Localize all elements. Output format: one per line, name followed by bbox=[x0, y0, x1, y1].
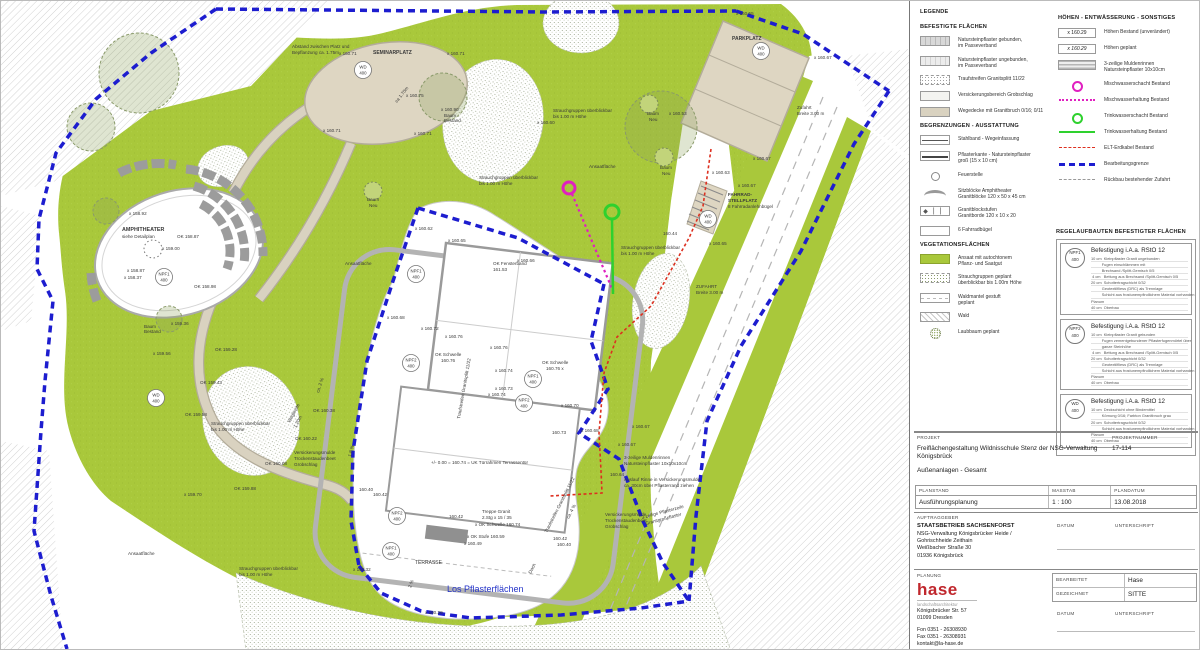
bearbeitet-label: BEARBEITET bbox=[1053, 574, 1124, 587]
legend-item-label: Pflasterkante - Natursteinpflaster groß … bbox=[958, 151, 1031, 165]
plan-label: Versickerungsmulde bbox=[294, 450, 336, 455]
plan-label: 8 Fahrradanlehnbügel bbox=[728, 204, 773, 209]
elt-swatch bbox=[1058, 144, 1096, 154]
plan-label: OK 159.58 bbox=[185, 412, 207, 417]
surface-badge-label: NPF1 bbox=[386, 546, 398, 551]
legend-item: Mischwasserschacht Bestand bbox=[1058, 80, 1196, 90]
legend-item-label: Wald bbox=[958, 312, 969, 319]
ansaat-swatch bbox=[920, 254, 950, 264]
surface-badge-label: WD bbox=[757, 46, 764, 51]
pflkante-swatch bbox=[920, 151, 950, 161]
legend-item-label: Laubbaum geplant bbox=[958, 328, 999, 335]
surface-badge-label: 400 bbox=[407, 364, 415, 369]
address-line: Fon 0351 - 26308930 bbox=[917, 627, 967, 634]
surface-badge-label: 400 bbox=[704, 220, 712, 225]
plan-label: x 159.70 bbox=[184, 492, 202, 497]
thalt-swatch bbox=[1058, 128, 1096, 138]
plan-label: x 160.68 bbox=[387, 315, 405, 320]
plan-label: 160.76 bbox=[441, 358, 455, 363]
legend-item: Natursteinpflaster gebunden, im Passever… bbox=[920, 36, 1052, 50]
legend-section-title: BEGRENZUNGEN - AUSSTATTUNG bbox=[920, 123, 1052, 129]
plan-label: 160.64 bbox=[610, 472, 624, 477]
plan-label: x 160.74 bbox=[488, 392, 506, 397]
legend-item: 3-zeilige Muldenrinnen Natursteinpflaste… bbox=[1058, 60, 1196, 74]
rueckbau-swatch bbox=[1058, 176, 1096, 186]
surface-badge-label: 400 bbox=[152, 399, 160, 404]
address-line: 01936 Königsbrück bbox=[917, 553, 1014, 560]
project-subtitle: Außenanlagen - Gesamt bbox=[917, 467, 987, 474]
legend-item-label: Granitblockstufen Granitborde 120 x 10 x… bbox=[958, 206, 1016, 220]
plan-label: x 160.71 bbox=[447, 51, 465, 56]
sitz-swatch bbox=[920, 187, 950, 197]
legend-item-label: Wegedecke mit Granitbruch 0/16; 0/11 bbox=[958, 107, 1043, 114]
massstab-value: 1 : 100 bbox=[1048, 496, 1110, 508]
plan-label: OK Schwelle bbox=[542, 360, 569, 365]
plan-label: x 160.71 bbox=[414, 131, 432, 136]
surface-badge-label: 400 bbox=[412, 275, 420, 280]
hase-logo-subtitle: landschaftsarchitektur bbox=[917, 600, 977, 607]
plan-label: OK 158.98 bbox=[194, 284, 216, 289]
plan-label: Strauchgruppen überblickbar bbox=[621, 245, 680, 250]
plan-label: x 160.66 bbox=[517, 258, 535, 263]
address-line: NSG-Verwaltung Königsbrücker Heide / bbox=[917, 531, 1014, 538]
legend-item-label: Stahlband - Wegeinfassung bbox=[958, 135, 1019, 142]
plan-label: x 159.56 bbox=[153, 351, 171, 356]
plan-label: +/- 0.00 = 160.74 = UK Türrahmen Terrass… bbox=[431, 460, 528, 465]
legend-item: Wegedecke mit Granitbruch 0/16; 0/11 bbox=[920, 107, 1052, 117]
gezeichnet-label: GEZEICHNET bbox=[1053, 588, 1124, 601]
legend-item-label: Versickerungsbereich Grobschlag bbox=[958, 91, 1033, 98]
legend-item-label: Sitzblöcke Amphitheater Granitblöcke 120… bbox=[958, 187, 1026, 201]
tschacht-swatch bbox=[1058, 112, 1096, 122]
surface-badge-label: 400 bbox=[757, 52, 765, 57]
plan-label: Los Pflasterflächen bbox=[447, 584, 524, 594]
surface-badge-label: NPF2 bbox=[392, 511, 404, 516]
plan-label: OK 159.88 bbox=[234, 486, 256, 491]
plan-label: x 160.68 bbox=[581, 428, 599, 433]
aufbauten-title: REGELAUFBAUTEN BEFESTIGTER FLÄCHEN bbox=[1056, 229, 1196, 235]
plan-label: Strauchgruppen überblickbar bbox=[239, 566, 298, 571]
unterschrift-label-2: UNTERSCHRIFT bbox=[1115, 611, 1154, 616]
plan-label: ca. 30cm über Pflasterrand ziehen bbox=[624, 483, 694, 488]
plan-label: 2.Stg x 15 / 35 bbox=[482, 515, 512, 520]
hbox-swatch: x 160.29 bbox=[1058, 28, 1096, 38]
legend-item: Strauchgruppen geplant überblickbar bis … bbox=[920, 273, 1052, 287]
plan-label: x 160.73 bbox=[495, 386, 513, 391]
plan-label: x 160.55 bbox=[736, 11, 754, 16]
plan-label: bis 1.00 m Höhe bbox=[211, 427, 245, 432]
mhalt-swatch bbox=[1058, 96, 1096, 106]
plan-label: x 160.75 bbox=[406, 93, 424, 98]
plan-label: OK 160.22 bbox=[295, 436, 317, 441]
plan-label: AMPHITHEATER bbox=[122, 227, 165, 233]
aufbau-entry: NPF1400Befestigung i.A.a. RStO 1210 cm K… bbox=[1060, 243, 1192, 315]
plan-label: x 160.32 bbox=[353, 567, 371, 572]
legend-item-label: Höhen Bestand (unverändert) bbox=[1104, 28, 1170, 35]
legend-item: Wald bbox=[920, 312, 1052, 322]
plan-label: Breite 3.00 m bbox=[696, 290, 723, 295]
trauf-swatch bbox=[920, 75, 950, 85]
legend-item-label: Natursteinpflaster ungebunden, im Passev… bbox=[958, 56, 1028, 70]
stahlband-swatch bbox=[920, 135, 950, 145]
plan-label: Grobschlag bbox=[294, 462, 318, 467]
aufbau-heading: Befestigung i.A.a. RStO 12 bbox=[1091, 323, 1188, 330]
legend-item: Natursteinpflaster ungebunden, im Passev… bbox=[920, 56, 1052, 70]
datum-label-2: DATUM bbox=[1057, 611, 1075, 616]
plan-label: x 160.67 bbox=[738, 183, 756, 188]
plan-label: x 160.65 bbox=[709, 241, 727, 246]
surface-badge-label: NPF2 bbox=[406, 358, 418, 363]
plan-label: Ansaatfläche bbox=[345, 261, 372, 266]
legend-item: Trinkwasserhaltung Bestand bbox=[1058, 128, 1196, 138]
plan-label: x 158.37 bbox=[124, 275, 142, 280]
plan-label: FAHRRAD- bbox=[728, 192, 752, 197]
wald-swatch bbox=[920, 312, 950, 322]
mulden-swatch bbox=[1058, 60, 1096, 70]
plan-label: Baum bbox=[660, 165, 672, 170]
legend-item: Mischwasserhaltung Bestand bbox=[1058, 96, 1196, 106]
plan-label: 161.53 bbox=[493, 267, 507, 272]
legend-item-label: Trinkwasserschacht Bestand bbox=[1104, 112, 1168, 119]
surface-badge-label: 400 bbox=[529, 380, 537, 385]
plan-label: OK 160.08 bbox=[265, 461, 287, 466]
plan-label: OK 160.38 bbox=[313, 408, 335, 413]
plan-label: Strauchgruppen überblickbar bbox=[211, 421, 270, 426]
stufen-swatch: ◆ ▏▏ bbox=[920, 206, 950, 216]
aufbau-badge: WD400 bbox=[1065, 399, 1085, 419]
project-number: 17-114 bbox=[1112, 445, 1131, 452]
legend-item: Waldmantel gestuft geplant bbox=[920, 293, 1052, 307]
plan-label: bis 1.00 m Höhe bbox=[553, 114, 587, 119]
legend-right-column: HÖHEN - ENTWÄSSERUNG - SONSTIGESx 160.29… bbox=[1058, 9, 1196, 192]
aufbau-badge: NPF2400 bbox=[1065, 324, 1085, 344]
plan-label: TERRASSE bbox=[415, 560, 443, 566]
plan-label: bis 1.00 m Höhe bbox=[479, 181, 513, 186]
legend-item-label: 3-zeilige Muldenrinnen Natursteinpflaste… bbox=[1104, 60, 1165, 74]
plan-label: Natursteinpflaster 10x10x10cm bbox=[624, 461, 687, 466]
bearbeitet-table: BEARBEITET Hase GEZEICHNET SITTE bbox=[1052, 573, 1197, 602]
address-line: 01099 Dresden bbox=[917, 615, 967, 622]
planung-address: Königsbrücker Str. 5701099 Dresden bbox=[917, 608, 967, 622]
legend-item: Ansaat mit autochtonem Pflanz- und Saatg… bbox=[920, 254, 1052, 268]
legend-item-label: ELT-Erdkabel Bestand bbox=[1104, 144, 1154, 151]
aufbau-layer-line: 40 cm Oberbau bbox=[1091, 380, 1188, 386]
legend-item-label: Trinkwasserhaltung Bestand bbox=[1104, 128, 1167, 135]
legend-item: Versickerungsbereich Grobschlag bbox=[920, 91, 1052, 101]
aufbau-entry: NPF2400Befestigung i.A.a. RStO 1210 cm K… bbox=[1060, 319, 1192, 391]
plan-label: Bestand bbox=[144, 329, 161, 334]
legend-section-title: BEFESTIGTE FLÄCHEN bbox=[920, 24, 1052, 30]
plan-label: SEMINARPLATZ bbox=[373, 50, 412, 56]
address-line: Gohrischheide Zeithain bbox=[917, 538, 1014, 545]
plan-label: x 160.63 bbox=[712, 170, 730, 175]
plan-label: x 158.87 bbox=[127, 268, 145, 273]
legend-item: Sitzblöcke Amphitheater Granitblöcke 120… bbox=[920, 187, 1052, 201]
plan-label: Treppe Granit bbox=[482, 509, 511, 514]
plan-label: Baum bbox=[367, 197, 379, 202]
plan-label: PARKPLATZ bbox=[732, 36, 762, 42]
plan-label: Ansaatfläche bbox=[128, 551, 155, 556]
legend-item: Pflasterkante - Natursteinpflaster groß … bbox=[920, 151, 1052, 165]
gezeichnet-value: SITTE bbox=[1124, 588, 1196, 601]
address-line: Königsbrücker Str. 57 bbox=[917, 608, 967, 615]
wege-swatch bbox=[920, 107, 950, 117]
auftraggeber-address: STAATSBETRIEB SACHSENFORSTNSG-Verwaltung… bbox=[917, 523, 1014, 560]
aufbau-layer-line: 40 cm Oberbau bbox=[1091, 305, 1188, 311]
plan-label: Breite 3.00 m bbox=[797, 111, 824, 116]
plan-label: x OK Schwelle 160.74 bbox=[475, 522, 521, 527]
plan-label: x 160.60 bbox=[537, 120, 555, 125]
buegel-swatch bbox=[920, 226, 950, 236]
legend-item: x 160.29Höhen Bestand (unverändert) bbox=[1058, 28, 1196, 38]
legend-item-label: Mischwasserhaltung Bestand bbox=[1104, 96, 1169, 103]
legend-item: Rückbau bestehender Zufahrt bbox=[1058, 176, 1196, 186]
plan-label: x 160.53 bbox=[669, 111, 687, 116]
legend-section-title: VEGETATIONSFLÄCHEN bbox=[920, 242, 1052, 248]
surface-badge-label: 400 bbox=[393, 517, 401, 522]
legend-item: Laubbaum geplant bbox=[920, 328, 1052, 338]
plan-sheet: x 158.92AMPHITHEATERsiehe DetailplanOK 1… bbox=[0, 0, 1200, 650]
mschacht-swatch bbox=[1058, 80, 1096, 90]
legend-item-label: Mischwasserschacht Bestand bbox=[1104, 80, 1170, 87]
planung-label: PLANUNG bbox=[917, 573, 941, 578]
surface-badge-label: NPF1 bbox=[159, 272, 171, 277]
plan-label: Auslauf Rinne in Versickerungsmulde bbox=[624, 477, 701, 482]
plan-label: x 160.90 bbox=[441, 107, 459, 112]
plan-label: x 159.36 bbox=[171, 321, 189, 326]
surface-badge-label: WD bbox=[704, 214, 711, 219]
address-line: kontakt@la-hase.de bbox=[917, 641, 967, 648]
legend-item: Stahlband - Wegeinfassung bbox=[920, 135, 1052, 145]
plan-label: Bepflanzung ca. 1.75m bbox=[292, 50, 339, 55]
pfgeb-swatch bbox=[920, 36, 950, 46]
aufbau-heading: Befestigung i.A.a. RStO 12 bbox=[1091, 398, 1188, 405]
bearbeitet-value: Hase bbox=[1124, 574, 1196, 587]
waldm-swatch bbox=[920, 293, 950, 303]
legend-item: x 160.29Höhen geplant bbox=[1058, 44, 1196, 54]
hboxi-swatch: x 160.29 bbox=[1058, 44, 1096, 54]
plan-label: 160.40 bbox=[557, 542, 571, 547]
surface-badge-label: 400 bbox=[359, 71, 367, 76]
projekt-label: PROJEKT bbox=[917, 435, 940, 440]
legend-item-label: Ansaat mit autochtonem Pflanz- und Saatg… bbox=[958, 254, 1012, 268]
plan-label: Baum bbox=[647, 111, 659, 116]
plan-label: ZUFAHRT bbox=[696, 284, 717, 289]
plan-label: Trockenstaudenbeet bbox=[294, 456, 336, 461]
project-title: Freiflächengestaltung Wildnisschule Sten… bbox=[917, 445, 1102, 462]
surface-badge-label: 400 bbox=[520, 404, 528, 409]
auftraggeber-label: AUFTRAGGEBER bbox=[917, 515, 959, 520]
address-line: Weißbacher Straße 30 bbox=[917, 545, 1014, 552]
plan-label: OK Schwelle bbox=[435, 352, 462, 357]
legend-item-label: Natursteinpflaster gebunden, im Passever… bbox=[958, 36, 1022, 50]
plan-label: 160.73 bbox=[552, 430, 566, 435]
planung-contact: Fon 0351 - 26308930Fax 0351 - 26308931ko… bbox=[917, 627, 967, 648]
plan-label: x OK Stufe 160.59 bbox=[467, 534, 505, 539]
plan-label: Strauchgruppen überblickbar bbox=[553, 108, 612, 113]
plan-label: OK 159.43 bbox=[200, 380, 222, 385]
legend-item-label: Rückbau bestehender Zufahrt bbox=[1104, 176, 1170, 183]
plan-label: x 159.00 bbox=[162, 246, 180, 251]
plan-label: x 160.70 bbox=[561, 403, 579, 408]
plan-label: OK 158.87 bbox=[177, 234, 199, 239]
plandatum-value: 13.08.2018 bbox=[1110, 496, 1196, 508]
strauch-swatch bbox=[920, 273, 950, 283]
legend-title: LEGENDE bbox=[920, 9, 948, 15]
plan-label: 3-zeilige Muldenrinnen bbox=[624, 455, 671, 460]
hase-logo: hase bbox=[917, 581, 958, 598]
plan-label: Bestand bbox=[444, 118, 461, 123]
aufbau-badge: NPF1400 bbox=[1065, 248, 1085, 268]
surface-badge-label: NPF1 bbox=[411, 269, 423, 274]
plan-label: Zufahrt bbox=[797, 105, 812, 110]
plan-label: Neu bbox=[369, 203, 378, 208]
plan-label: x 158.92 bbox=[129, 211, 147, 216]
plan-label: Neu bbox=[662, 171, 671, 176]
surface-badge-label: 400 bbox=[387, 552, 395, 557]
plan-label: x 160.67 bbox=[814, 55, 832, 60]
plan-label: Strauchgruppen überblickbar bbox=[479, 175, 538, 180]
plan-label: 160.42 bbox=[373, 492, 387, 497]
bgrenze-swatch bbox=[1058, 160, 1096, 170]
surface-badge-label: NPF2 bbox=[519, 398, 531, 403]
plan-label: Ansaatfläche bbox=[589, 164, 616, 169]
surface-badge-label: WD bbox=[152, 393, 159, 398]
plan-label: bis 1.00 m Höhe bbox=[239, 572, 273, 577]
plan-label: x 160.62 bbox=[415, 226, 433, 231]
plan-label: STELLPLATZ bbox=[728, 198, 757, 203]
legend-item: Feuerstelle bbox=[920, 171, 1052, 181]
site-plan-drawing: x 158.92AMPHITHEATERsiehe DetailplanOK 1… bbox=[1, 1, 909, 650]
legend-item: Bearbeitungsgrenze bbox=[1058, 160, 1196, 170]
surface-badge-label: WD bbox=[359, 65, 366, 70]
legend-item: ◆ ▏▏Granitblockstufen Granitborde 120 x … bbox=[920, 206, 1052, 220]
unterschrift-label-1: UNTERSCHRIFT bbox=[1115, 523, 1154, 528]
plan-label: Abstand zwischen Platz und bbox=[292, 44, 350, 49]
legend-left-column: BEFESTIGTE FLÄCHENNatursteinpflaster geb… bbox=[920, 18, 1052, 344]
plan-label: x 160.49 bbox=[464, 541, 482, 546]
legend-section-title: HÖHEN - ENTWÄSSERUNG - SONSTIGES bbox=[1058, 15, 1196, 21]
legend-item-label: Höhen geplant bbox=[1104, 44, 1137, 51]
plan-label: Neu bbox=[649, 117, 658, 122]
legend-item-label: Traufstreifen Granitsplitt 11/22 bbox=[958, 75, 1025, 82]
plan-label: 160.76 x bbox=[546, 366, 564, 371]
plan-label: x 160.71 bbox=[323, 128, 341, 133]
plan-label: x 160.67 bbox=[632, 424, 650, 429]
legend-item: Traufstreifen Granitsplitt 11/22 bbox=[920, 75, 1052, 85]
surface-badge-label: 400 bbox=[160, 278, 168, 283]
plan-label: x 160.74 bbox=[495, 368, 513, 373]
plan-label: Grobschlag bbox=[605, 524, 629, 529]
legend-titleblock-panel: LEGENDE BEFESTIGTE FLÄCHENNatursteinpfla… bbox=[909, 1, 1200, 650]
plandatum-label: PLANDATUM bbox=[1110, 486, 1196, 495]
datum-label-1: DATUM bbox=[1057, 523, 1075, 528]
plan-label: 160.40 bbox=[359, 487, 373, 492]
legend-item-label: Bearbeitungsgrenze bbox=[1104, 160, 1149, 167]
plan-label: x 160.72 bbox=[421, 326, 439, 331]
plan-label: 160.42 bbox=[449, 514, 463, 519]
plan-label: x 160.67 bbox=[753, 156, 771, 161]
address-line: STAATSBETRIEB SACHSENFORST bbox=[917, 523, 1014, 531]
feuer-swatch bbox=[920, 171, 950, 181]
address-line: Fax 0351 - 26308931 bbox=[917, 634, 967, 641]
plan-label: siehe Detailplan bbox=[122, 234, 155, 239]
plan-label: x 160.71 bbox=[339, 51, 357, 56]
legend-item: Trinkwasserschacht Bestand bbox=[1058, 112, 1196, 122]
projektnummer-label: PROJEKTNUMMER bbox=[1112, 435, 1158, 440]
legend-item-label: Strauchgruppen geplant überblickbar bis … bbox=[958, 273, 1022, 287]
aufbau-heading: Befestigung i.A.a. RStO 12 bbox=[1091, 247, 1188, 254]
plan-label: OK 159.28 bbox=[215, 347, 237, 352]
laub-swatch bbox=[920, 328, 950, 338]
planstand-table: PLANSTAND MASSTAB PLANDATUM Ausführungsp… bbox=[915, 485, 1197, 509]
legend-item-label: 6 Fahrradbügel bbox=[958, 226, 992, 233]
massstab-label: MASSTAB bbox=[1048, 486, 1110, 495]
planstand-value: Ausführungsplanung bbox=[916, 496, 1048, 508]
versick-swatch bbox=[920, 91, 950, 101]
plan-label: bis 1.00 m Höhe bbox=[621, 251, 655, 256]
planstand-label: PLANSTAND bbox=[916, 486, 1048, 495]
legend-item: 6 Fahrradbügel bbox=[920, 226, 1052, 236]
plan-label: x 160.76 bbox=[445, 334, 463, 339]
legend-item-label: Feuerstelle bbox=[958, 171, 983, 178]
aufbauten-list: NPF1400Befestigung i.A.a. RStO 1210 cm K… bbox=[1056, 239, 1196, 456]
plan-label: 160.44 bbox=[663, 231, 677, 236]
plan-label: x 160.67 bbox=[618, 442, 636, 447]
legend-item: ELT-Erdkabel Bestand bbox=[1058, 144, 1196, 154]
plan-label: x 160.76 bbox=[490, 345, 508, 350]
plan-label: 160.42 bbox=[553, 536, 567, 541]
plan-label: x 160.29 bbox=[425, 610, 443, 615]
legend-item-label: Waldmantel gestuft geplant bbox=[958, 293, 1001, 307]
plan-label: x 160.65 bbox=[448, 238, 466, 243]
pfungeb-swatch bbox=[920, 56, 950, 66]
surface-badge-label: NPF1 bbox=[528, 374, 540, 379]
